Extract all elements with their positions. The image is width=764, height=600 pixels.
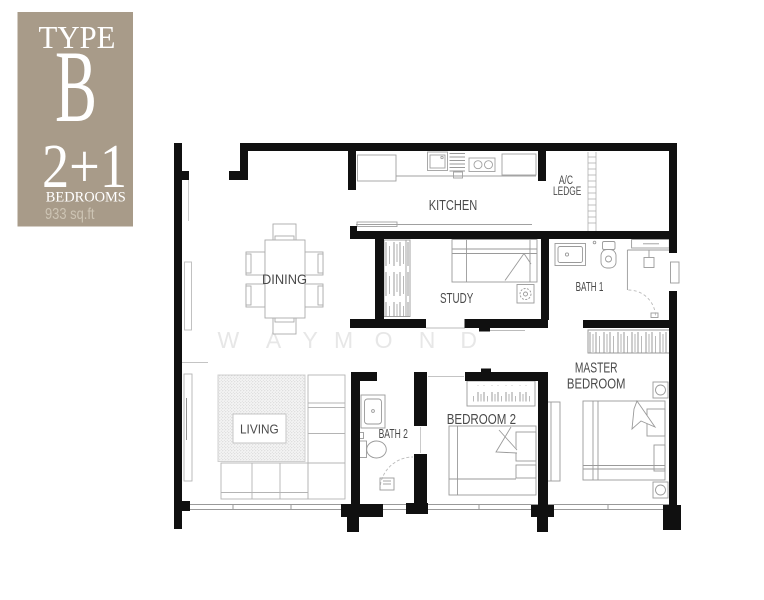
svg-text:M: M (334, 327, 353, 353)
svg-text:BEDROOM: BEDROOM (567, 375, 626, 392)
svg-text:BEDROOMS: BEDROOMS (46, 190, 126, 206)
svg-text:D: D (460, 327, 477, 353)
svg-text:N: N (419, 327, 436, 353)
svg-text:933 sq.ft: 933 sq.ft (45, 206, 95, 223)
svg-text:KITCHEN: KITCHEN (429, 197, 478, 214)
svg-text:Y: Y (303, 327, 318, 353)
svg-text:LIVING: LIVING (240, 422, 279, 436)
svg-text:BATH 1: BATH 1 (576, 280, 604, 294)
svg-text:B: B (55, 30, 97, 144)
svg-text:W: W (218, 327, 240, 353)
svg-text:DINING: DINING (262, 271, 307, 287)
svg-text:O: O (375, 327, 393, 353)
svg-text:BATH 2: BATH 2 (379, 427, 408, 441)
svg-text:BEDROOM 2: BEDROOM 2 (447, 411, 516, 428)
svg-text:STUDY: STUDY (440, 290, 473, 307)
svg-text:LEDGE: LEDGE (553, 186, 582, 198)
svg-text:MASTER: MASTER (575, 360, 618, 377)
